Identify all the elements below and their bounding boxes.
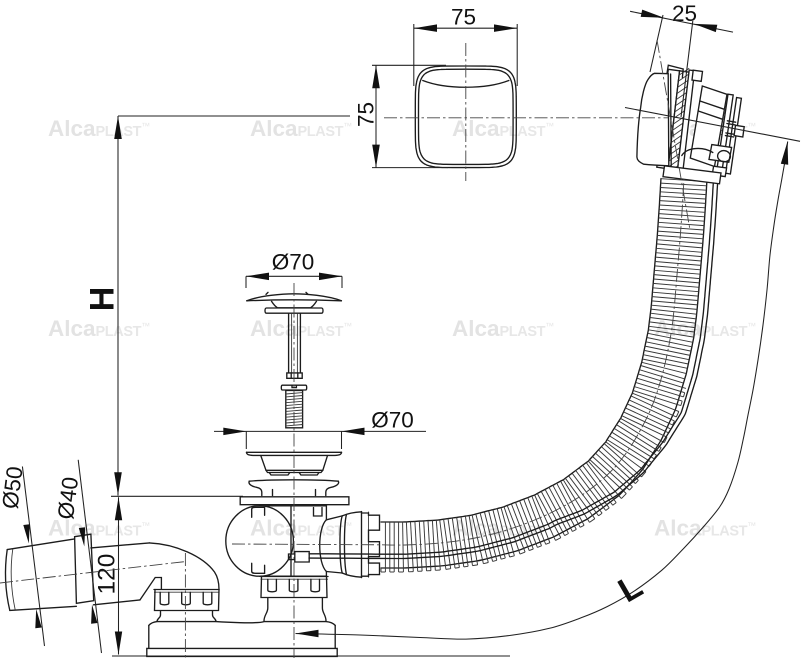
svg-text:Ø40: Ø40 bbox=[53, 475, 83, 520]
svg-text:75: 75 bbox=[451, 5, 476, 30]
svg-text:75: 75 bbox=[354, 102, 379, 127]
svg-text:Ø70: Ø70 bbox=[272, 250, 315, 275]
svg-text:Ø70: Ø70 bbox=[371, 408, 414, 433]
svg-text:H: H bbox=[84, 287, 122, 312]
svg-text:120: 120 bbox=[94, 554, 121, 595]
